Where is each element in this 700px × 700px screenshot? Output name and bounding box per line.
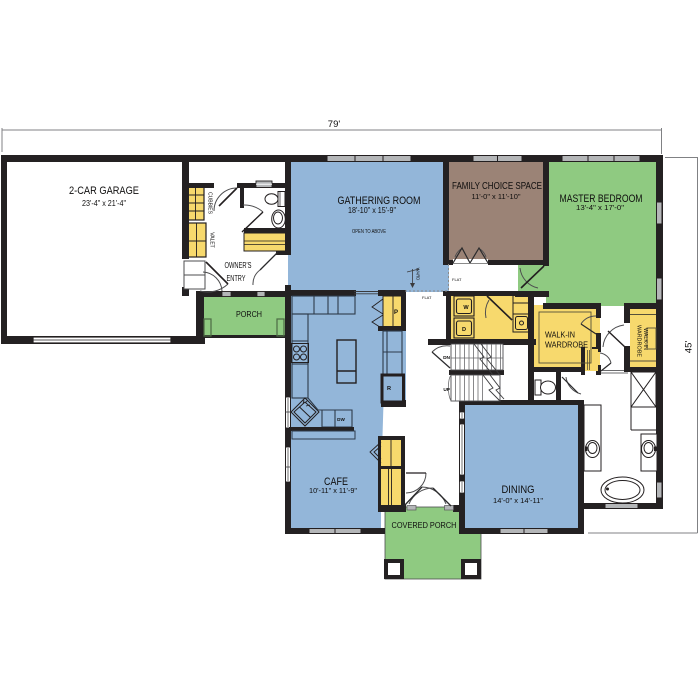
svg-text:W: W [463, 305, 469, 311]
svg-text:WARDROBE: WARDROBE [545, 340, 588, 350]
svg-text:DN: DN [443, 355, 450, 361]
svg-text:14'-0" x 14'-11": 14'-0" x 14'-11" [493, 496, 543, 505]
svg-text:WALK-IN: WALK-IN [642, 328, 648, 350]
svg-text:D: D [462, 327, 466, 333]
svg-text:P: P [394, 310, 398, 316]
svg-text:CUBBIES: CUBBIES [207, 192, 213, 215]
svg-text:COVERED PORCH: COVERED PORCH [392, 521, 457, 530]
svg-text:R: R [387, 386, 391, 392]
svg-text:FLAT: FLAT [452, 277, 462, 282]
svg-text:OPEN TO ABOVE: OPEN TO ABOVE [352, 229, 387, 235]
svg-text:OWNER'S: OWNER'S [225, 261, 252, 270]
svg-text:WARDROBE: WARDROBE [636, 325, 642, 357]
svg-text:DW: DW [337, 417, 345, 422]
svg-text:18'-10" x 15'-9": 18'-10" x 15'-9" [348, 206, 396, 215]
svg-text:2-CAR GARAGE: 2-CAR GARAGE [69, 185, 139, 197]
svg-text:13'-4" x 17'-0": 13'-4" x 17'-0" [576, 203, 624, 212]
svg-text:DINING: DINING [502, 484, 535, 496]
svg-text:11'-0" x 11'-10": 11'-0" x 11'-10" [472, 192, 521, 201]
svg-text:ENTRY: ENTRY [227, 274, 246, 283]
svg-text:FLAT: FLAT [422, 295, 432, 300]
svg-text:10'-11" x 11'-9": 10'-11" x 11'-9" [309, 486, 357, 495]
svg-text:VALET: VALET [209, 232, 215, 247]
svg-text:79': 79' [328, 119, 341, 130]
svg-text:WALK-IN: WALK-IN [545, 330, 575, 340]
svg-text:45': 45' [684, 341, 695, 354]
svg-text:FAMILY CHOICE SPACE: FAMILY CHOICE SPACE [452, 180, 542, 192]
svg-text:WARD: WARD [416, 268, 421, 281]
svg-text:UP: UP [443, 387, 450, 393]
svg-text:23'-4" x 21'-4": 23'-4" x 21'-4" [82, 199, 126, 208]
svg-text:PORCH: PORCH [236, 310, 262, 319]
